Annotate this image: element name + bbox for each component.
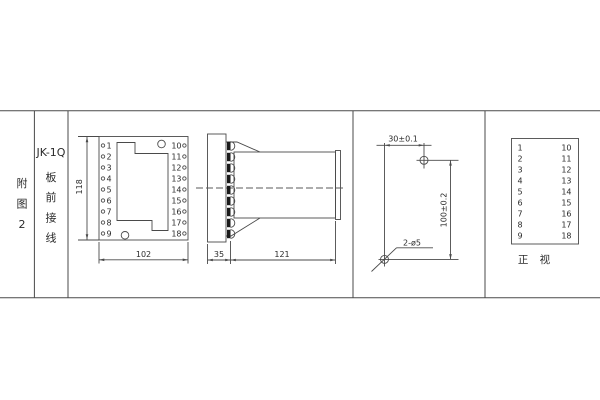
dimension-102: 102 <box>99 242 188 264</box>
terminal-number: 4 <box>107 174 112 183</box>
terminal-pin-icon <box>101 155 104 158</box>
front-left-terminal-labels: 1 2 3 4 5 6 7 8 9 <box>107 141 112 238</box>
mounting-hole-top-icon <box>158 140 166 148</box>
terminal-pin-icon <box>101 188 104 191</box>
mounting-hole-bottom-icon <box>121 232 129 240</box>
wiring-label-char: 接 <box>46 212 57 225</box>
terminal-number: 18 <box>171 229 181 238</box>
wiring-label-char: 前 <box>46 190 57 204</box>
terminal-pin-icon <box>101 210 104 213</box>
table-cell: 12 <box>561 166 571 175</box>
terminal-number: 7 <box>107 207 112 216</box>
table-caption: 正 视 <box>518 253 554 266</box>
arrowhead-icon <box>225 259 230 262</box>
terminal-number: 1 <box>107 141 112 150</box>
terminal-pin-icon <box>101 232 104 235</box>
terminal-pin-icon <box>183 221 186 224</box>
dimension-value: 35 <box>214 250 224 259</box>
hole-spec-label: 2-ø5 <box>403 238 421 247</box>
terminal-number: 14 <box>171 185 181 194</box>
figure-label-char: 附 <box>17 176 28 190</box>
terminal-pin-icon <box>183 144 186 147</box>
terminal-pin-icon <box>183 232 186 235</box>
terminal-pin-icon <box>183 166 186 169</box>
terminal-number: 2 <box>107 152 112 161</box>
table-cell: 1 <box>518 144 523 153</box>
terminal-base <box>227 164 231 172</box>
terminal-number: 5 <box>107 185 112 194</box>
arrowhead-icon <box>99 259 104 262</box>
terminal-base <box>227 175 231 183</box>
terminal-number: 3 <box>107 163 112 172</box>
terminal-pin-icon <box>183 210 186 213</box>
arrowhead-icon <box>449 160 452 165</box>
dimension-value: 30±0.1 <box>388 134 418 143</box>
terminal-bump-icon <box>231 219 235 228</box>
wiring-label-char: 线 <box>46 231 57 245</box>
frame <box>0 111 600 298</box>
table-cell: 3 <box>518 166 523 175</box>
dimension-value: 102 <box>136 250 151 259</box>
terminal-pin-icon <box>101 144 104 147</box>
left-panel-labels: 附 图 2 JK-1Q 板 前 接 线 <box>17 146 66 245</box>
arrowhead-icon <box>86 137 89 142</box>
terminal-pin-icon <box>183 155 186 158</box>
front-right-terminal-pins <box>183 144 186 235</box>
arrowhead-icon <box>385 144 390 146</box>
terminal-pin-icon <box>101 221 104 224</box>
terminal-base <box>227 208 231 216</box>
terminal-bump-icon <box>231 142 235 151</box>
table-cell: 18 <box>561 232 571 241</box>
terminal-pin-icon <box>183 199 186 202</box>
dimension-value: 121 <box>274 250 289 259</box>
dimension-value: 118 <box>75 179 84 194</box>
table-cell: 9 <box>518 232 523 241</box>
arrowhead-icon <box>330 259 335 262</box>
terminal-pin-icon <box>183 177 186 180</box>
figure-label-char: 图 <box>17 198 28 211</box>
model-label: JK-1Q <box>36 146 66 159</box>
relay-body-end-cap <box>336 151 341 220</box>
table-cell: 14 <box>561 188 571 197</box>
drawing-sheet: 附 图 2 JK-1Q 板 前 接 线 1 2 3 4 <box>0 0 600 400</box>
technical-drawing-canvas: 附 图 2 JK-1Q 板 前 接 线 1 2 3 4 <box>0 0 600 400</box>
terminal-base <box>227 153 231 161</box>
dimension-value: 100±0.2 <box>440 193 449 228</box>
terminal-number: 16 <box>171 207 181 216</box>
arrowhead-icon <box>419 144 424 146</box>
terminal-number: 17 <box>171 218 181 227</box>
table-cell: 11 <box>561 155 571 164</box>
front-right-terminal-labels: 10 11 12 13 14 15 16 17 18 <box>171 141 181 238</box>
terminal-number: 15 <box>171 196 181 205</box>
front-view-cutout <box>117 143 168 231</box>
terminal-number: 11 <box>171 152 181 161</box>
terminal-pin-icon <box>183 188 186 191</box>
table-cell: 6 <box>518 199 523 208</box>
drill-view: 30±0.1 100±0.2 2-ø5 <box>372 134 459 271</box>
terminal-number: 10 <box>171 141 181 150</box>
terminal-pin-icon <box>101 199 104 202</box>
front-view: 1 2 3 4 5 6 7 8 9 10 11 12 13 14 15 16 1… <box>75 137 188 264</box>
dimension-35-121: 35 121 <box>208 221 336 264</box>
terminal-base <box>227 186 231 194</box>
table-cell: 4 <box>518 177 523 186</box>
figure-label-char: 2 <box>19 218 26 231</box>
terminal-number: 13 <box>171 174 181 183</box>
terminal-pin-icon <box>101 166 104 169</box>
arrowhead-icon <box>208 259 213 262</box>
terminal-base <box>227 230 231 238</box>
table-cell: 15 <box>561 199 571 208</box>
terminal-base <box>227 197 231 205</box>
arrowhead-icon <box>449 254 452 259</box>
terminal-number: 8 <box>107 218 112 227</box>
terminal-table: 1 2 3 4 5 6 7 8 9 10 11 12 13 14 15 16 1… <box>512 139 579 267</box>
table-cell: 8 <box>518 221 523 230</box>
terminal-pin-icon <box>101 177 104 180</box>
relay-body-outline <box>234 152 336 218</box>
terminal-base <box>227 142 231 150</box>
table-cell: 16 <box>561 210 571 219</box>
table-right-column: 10 11 12 13 14 15 16 17 18 <box>561 144 571 241</box>
table-left-column: 1 2 3 4 5 6 7 8 9 <box>518 144 523 241</box>
table-cell: 10 <box>561 144 571 153</box>
table-cell: 17 <box>561 221 571 230</box>
terminal-number: 6 <box>107 196 112 205</box>
arrowhead-icon <box>183 259 188 262</box>
table-cell: 2 <box>518 155 523 164</box>
dimension-118: 118 <box>75 137 99 241</box>
side-view: 35 121 <box>196 134 344 264</box>
table-cell: 13 <box>561 177 571 186</box>
arrowhead-icon <box>86 234 89 239</box>
wiring-label-char: 板 <box>46 170 57 184</box>
terminal-number: 12 <box>171 163 181 172</box>
terminal-base <box>227 219 231 227</box>
terminal-number: 9 <box>107 229 112 238</box>
front-left-terminal-pins <box>101 144 104 235</box>
table-cell: 7 <box>518 210 523 219</box>
table-cell: 5 <box>518 188 523 197</box>
arrowhead-icon <box>231 259 236 262</box>
